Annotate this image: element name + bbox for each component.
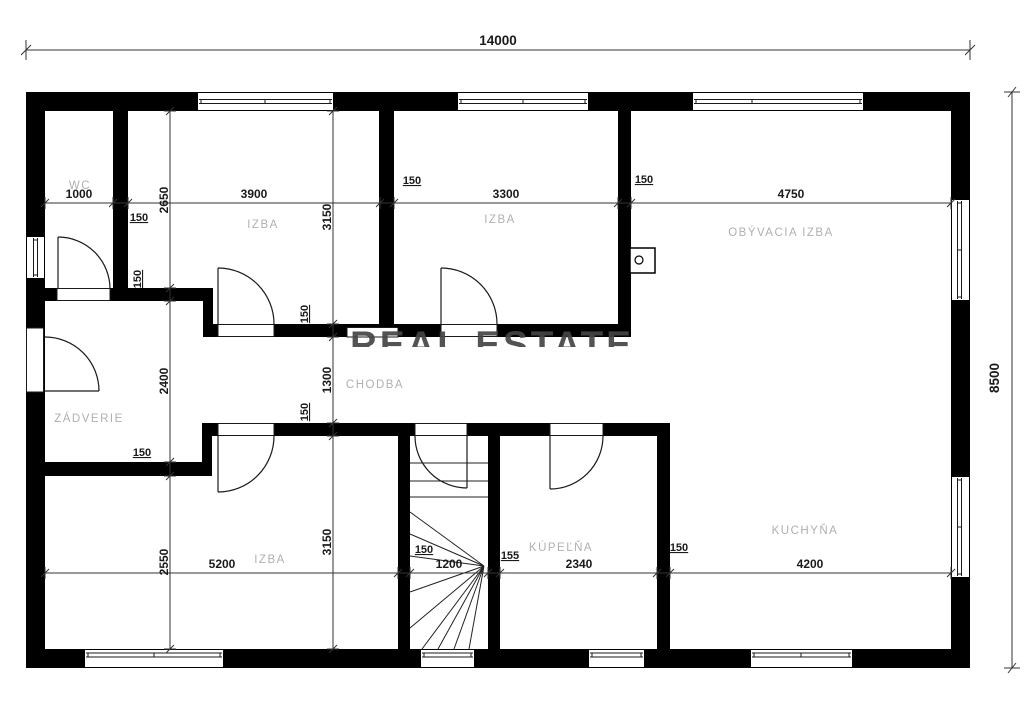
room-label-kupelna: KÚPEĽŇA bbox=[529, 541, 593, 554]
room-label-izba1: IZBA bbox=[247, 219, 279, 231]
door-arc-kupelna bbox=[550, 436, 603, 489]
thickness-wall-izba2-living: 150 bbox=[635, 174, 653, 186]
wall-izba1-izba2 bbox=[379, 111, 394, 337]
window-right-living bbox=[952, 200, 969, 300]
chimney-flue-icon bbox=[635, 256, 643, 264]
room-label-chodba: CHODBA bbox=[346, 379, 404, 391]
window-top-izba1 bbox=[198, 93, 333, 110]
dim-wc-height: 2650 bbox=[157, 186, 171, 213]
thickness-wall-izba1-izba2: 150 bbox=[403, 175, 421, 187]
wall-right bbox=[951, 92, 970, 668]
thickness-wall-under-wc: 150 bbox=[132, 270, 144, 288]
wall-wc-izba1 bbox=[113, 111, 128, 301]
thickness-wall-wc: 150 bbox=[130, 212, 148, 224]
dim-chodba-height: 1300 bbox=[320, 366, 334, 393]
wall-zadverie-bottom bbox=[45, 462, 212, 476]
dim-izba3-width: 5200 bbox=[209, 557, 236, 571]
room-label-izba3: IZBA bbox=[254, 554, 286, 566]
window-left-wc bbox=[27, 237, 44, 278]
stairs-treads bbox=[410, 463, 488, 497]
door-opening-izba3 bbox=[218, 424, 274, 436]
wall-kitchen-left bbox=[657, 436, 670, 649]
thickness-wall-stairs-left: 150 bbox=[415, 544, 433, 556]
thickness-wall-chodba-bottom: 150 bbox=[299, 403, 311, 421]
watermark: REAL ESTATE bbox=[350, 324, 634, 365]
door-arc-izba1 bbox=[218, 268, 274, 324]
thickness-wall-kitchen: 150 bbox=[670, 542, 688, 554]
door-arc-izba2 bbox=[441, 268, 497, 324]
dim-izba2-width: 3300 bbox=[493, 187, 520, 201]
watermark-text: REAL ESTATE bbox=[350, 324, 634, 365]
dim-zadverie-height: 2400 bbox=[157, 367, 171, 394]
window-top-izba2 bbox=[458, 93, 588, 110]
room-label-living: OBÝVACIA IZBA bbox=[728, 226, 834, 239]
dim-izba1-height: 3150 bbox=[320, 203, 334, 230]
wall-izba2-living bbox=[618, 111, 631, 337]
dim-kuchyna-width: 4200 bbox=[797, 557, 824, 571]
thickness-wall-zadverie: 150 bbox=[133, 447, 151, 459]
door-opening-wc bbox=[57, 289, 110, 301]
door-opening-kupelna bbox=[550, 424, 603, 436]
room-label-wc: WC bbox=[69, 180, 91, 192]
staircase bbox=[410, 463, 488, 649]
floor-plan-page: REAL ESTATE 14000 8500 1000 3900 3300 47… bbox=[0, 0, 1024, 724]
door-arc-entrance bbox=[45, 337, 99, 391]
door-arc-stairs bbox=[415, 436, 467, 488]
door-swings bbox=[45, 237, 603, 492]
floor-plan-drawing: REAL ESTATE 14000 8500 1000 3900 3300 47… bbox=[0, 0, 1024, 724]
chimney-symbol bbox=[630, 248, 655, 273]
thickness-wall-chodba-top: 150 bbox=[299, 305, 311, 323]
window-bottom-izba3 bbox=[85, 650, 223, 667]
dim-stairs-width: 1200 bbox=[436, 557, 463, 571]
room-label-izba2: IZBA bbox=[484, 214, 516, 226]
door-opening-stairs bbox=[415, 424, 467, 436]
window-right-kitchen bbox=[952, 477, 969, 577]
wall-stairs-left bbox=[398, 436, 410, 649]
dim-living-width: 4750 bbox=[778, 187, 805, 201]
dim-kupelna-width: 2340 bbox=[566, 557, 593, 571]
window-top-living bbox=[693, 93, 863, 110]
room-label-zadverie: ZÁDVERIE bbox=[54, 412, 124, 425]
window-bottom-stairs bbox=[421, 650, 474, 667]
door-opening-entrance bbox=[27, 328, 44, 392]
door-opening-izba1 bbox=[218, 325, 274, 337]
room-label-kuchyna: KUCHYŇA bbox=[772, 524, 839, 537]
dim-izba3-height-left: 2550 bbox=[157, 548, 171, 575]
wall-stairs-right bbox=[488, 436, 500, 649]
stairs-winders bbox=[410, 512, 484, 649]
window-bottom-kitchen bbox=[751, 650, 852, 667]
window-bottom-kupelna bbox=[589, 650, 644, 667]
thickness-wall-stairs-right: 155 bbox=[501, 550, 519, 562]
dim-izba1-width: 3900 bbox=[241, 187, 268, 201]
dim-overall-height: 8500 bbox=[987, 363, 1002, 393]
dim-izba3-height: 3150 bbox=[320, 528, 334, 555]
door-arc-izba3 bbox=[218, 436, 274, 492]
dimension-lines bbox=[21, 40, 1020, 673]
dim-overall-width: 14000 bbox=[479, 33, 517, 48]
door-arc-wc bbox=[58, 237, 110, 289]
